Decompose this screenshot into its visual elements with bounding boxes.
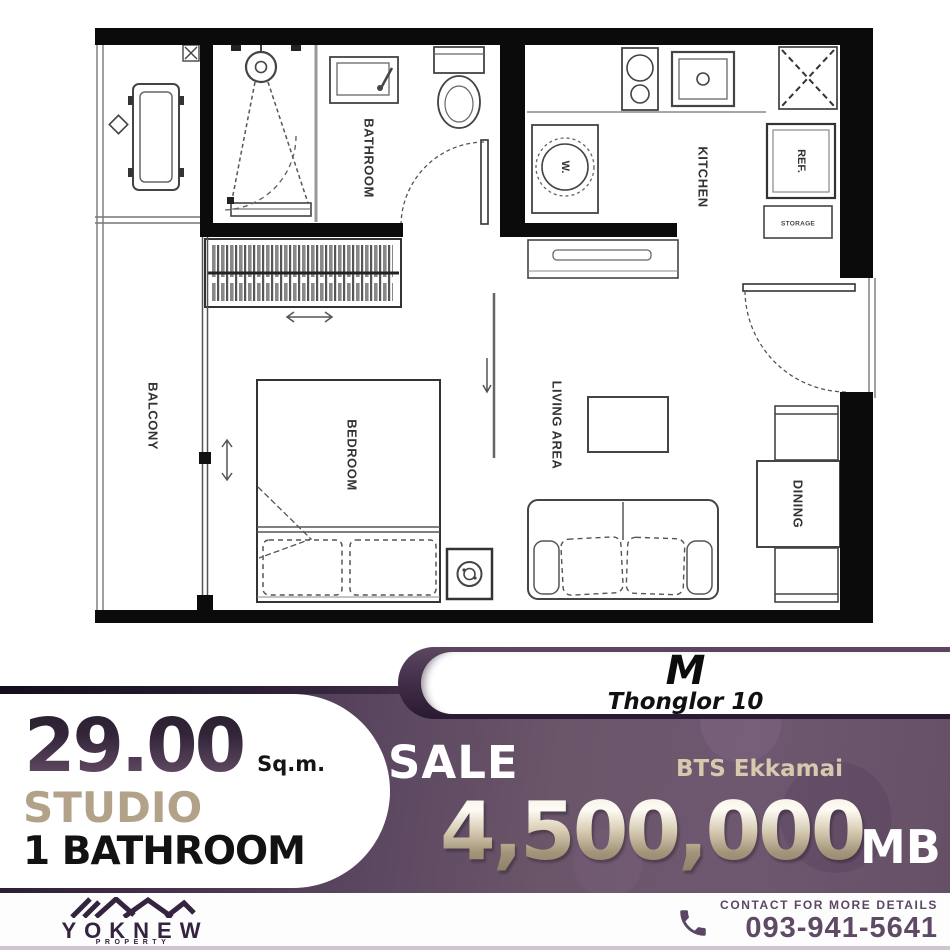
listing-type: SALE	[388, 736, 519, 789]
mountain-logo-icon	[66, 897, 196, 918]
currency-unit: MB	[860, 820, 941, 874]
stove	[622, 48, 658, 110]
project-name: Thonglor 10	[608, 690, 764, 714]
brand-name: YOKNEW	[34, 923, 236, 938]
bathroom-door	[401, 140, 488, 226]
entrance-door	[743, 284, 855, 392]
unit-card: M Thonglor 10	[421, 652, 950, 714]
partition-arrow-icon	[483, 358, 491, 392]
living-area-label: LIVING AREA	[550, 381, 565, 470]
unit-type: STUDIO	[23, 787, 202, 829]
toilet	[434, 47, 484, 128]
bathroom-sink	[330, 57, 398, 103]
shower	[222, 45, 316, 222]
refrigerator-label: REF.	[795, 149, 807, 173]
floor-plan: BALCONY BATHROOM KITCHEN BEDROOM LIVING …	[0, 0, 950, 660]
contact-block: CONTACT FOR MORE DETAILS 093-941-5641	[676, 897, 938, 943]
sofa	[528, 500, 718, 599]
contact-label: CONTACT FOR MORE DETAILS	[720, 897, 938, 913]
kitchen-sink	[672, 52, 734, 106]
bathroom-label: BATHROOM	[362, 118, 377, 198]
bts-station: BTS Ekkamai	[676, 756, 843, 782]
floor-drain	[183, 45, 199, 61]
slide-arrow-icon	[287, 312, 332, 322]
dining-label: DINING	[791, 480, 806, 529]
shaft	[779, 47, 837, 109]
bedroom-label: BEDROOM	[345, 419, 360, 490]
valve-symbol	[109, 115, 127, 133]
property-ad: BALCONY BATHROOM KITCHEN BEDROOM LIVING …	[0, 0, 950, 950]
bed	[257, 380, 440, 602]
area-unit: Sq.m.	[257, 752, 325, 776]
unit-model: M	[666, 653, 706, 690]
bathroom-count: 1 BATHROOM	[23, 831, 305, 873]
area-value: 29.00	[24, 708, 243, 784]
wardrobe	[205, 239, 401, 307]
kitchen-label: KITCHEN	[696, 146, 711, 207]
washer-label: W.	[559, 161, 571, 174]
condenser-unit	[128, 84, 184, 190]
entrance-exterior-line	[869, 278, 875, 398]
tv-cabinet	[588, 397, 668, 452]
phone-icon	[676, 906, 710, 940]
area-row: 29.00 Sq.m.	[24, 708, 325, 784]
balcony-label: BALCONY	[146, 382, 161, 450]
fan-coil-unit	[447, 549, 492, 599]
price: 4,500,000	[440, 792, 863, 872]
console-table	[528, 240, 678, 278]
contact-phone: 093-941-5641	[720, 913, 938, 943]
door-arrow-icon	[222, 440, 232, 480]
storage-label: STORAGE	[781, 221, 815, 228]
brand-logo: YOKNEW PROPERTY	[26, 897, 236, 947]
